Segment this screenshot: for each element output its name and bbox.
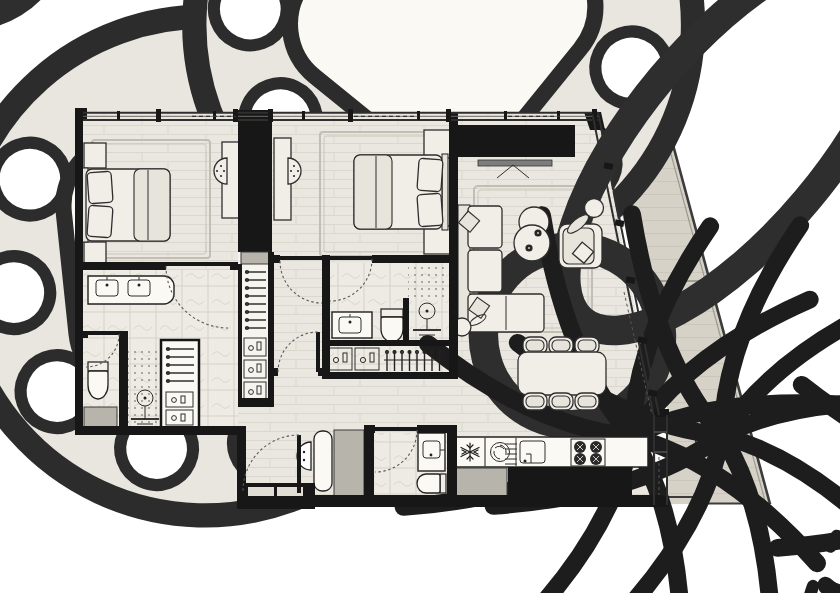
wardrobe-upper [238,110,272,252]
bedroom-2-right-wall [449,112,458,379]
toilet [417,474,446,493]
closet-bottom-wall [322,372,455,379]
wc-left-wall [364,425,374,505]
sofa-cushion [468,250,502,292]
bed-1 [82,168,170,242]
left-wall [75,108,83,435]
duvet [354,155,392,229]
tv-wall [457,125,575,157]
floor-plan-drawing [0,0,840,593]
pillow [417,193,443,227]
corridor-right-wall [322,255,330,379]
armchair [559,224,602,268]
shower-floor-ensuite [408,266,446,302]
wardrobe-shelf [241,252,269,264]
dining-chairs-bottom [523,393,599,410]
vanity [418,433,445,471]
entry-threshold [248,487,274,496]
bottom-wall [310,495,662,507]
toilet [381,309,403,342]
tv [478,160,552,166]
double-vanity [88,276,174,304]
wc-nook-wall [119,331,128,430]
wardrobe-base [238,398,272,407]
pillow [87,171,113,204]
shower-partition [403,298,409,344]
kitchen-block [452,468,507,498]
bedroom-2-wall [372,255,455,263]
nightstand [84,143,106,168]
kitchen-counter [452,437,648,467]
bedroom-1-wall [82,262,166,270]
duvet [134,169,170,241]
toilet [88,362,108,399]
linen-closet [161,340,199,430]
dining-table [518,352,606,395]
pillow [417,158,443,192]
pillow [87,205,113,238]
bottom-left-wall [75,426,245,435]
storage-block [334,430,364,497]
ensuite-bottom-wall [322,340,455,346]
shower-tray [84,407,117,427]
shower-floor-master [128,348,160,428]
guest-wc [417,433,446,493]
floor-plan [0,0,840,593]
bed-2 [354,154,448,230]
wc-right-wall [447,425,457,505]
vanity [332,312,372,338]
